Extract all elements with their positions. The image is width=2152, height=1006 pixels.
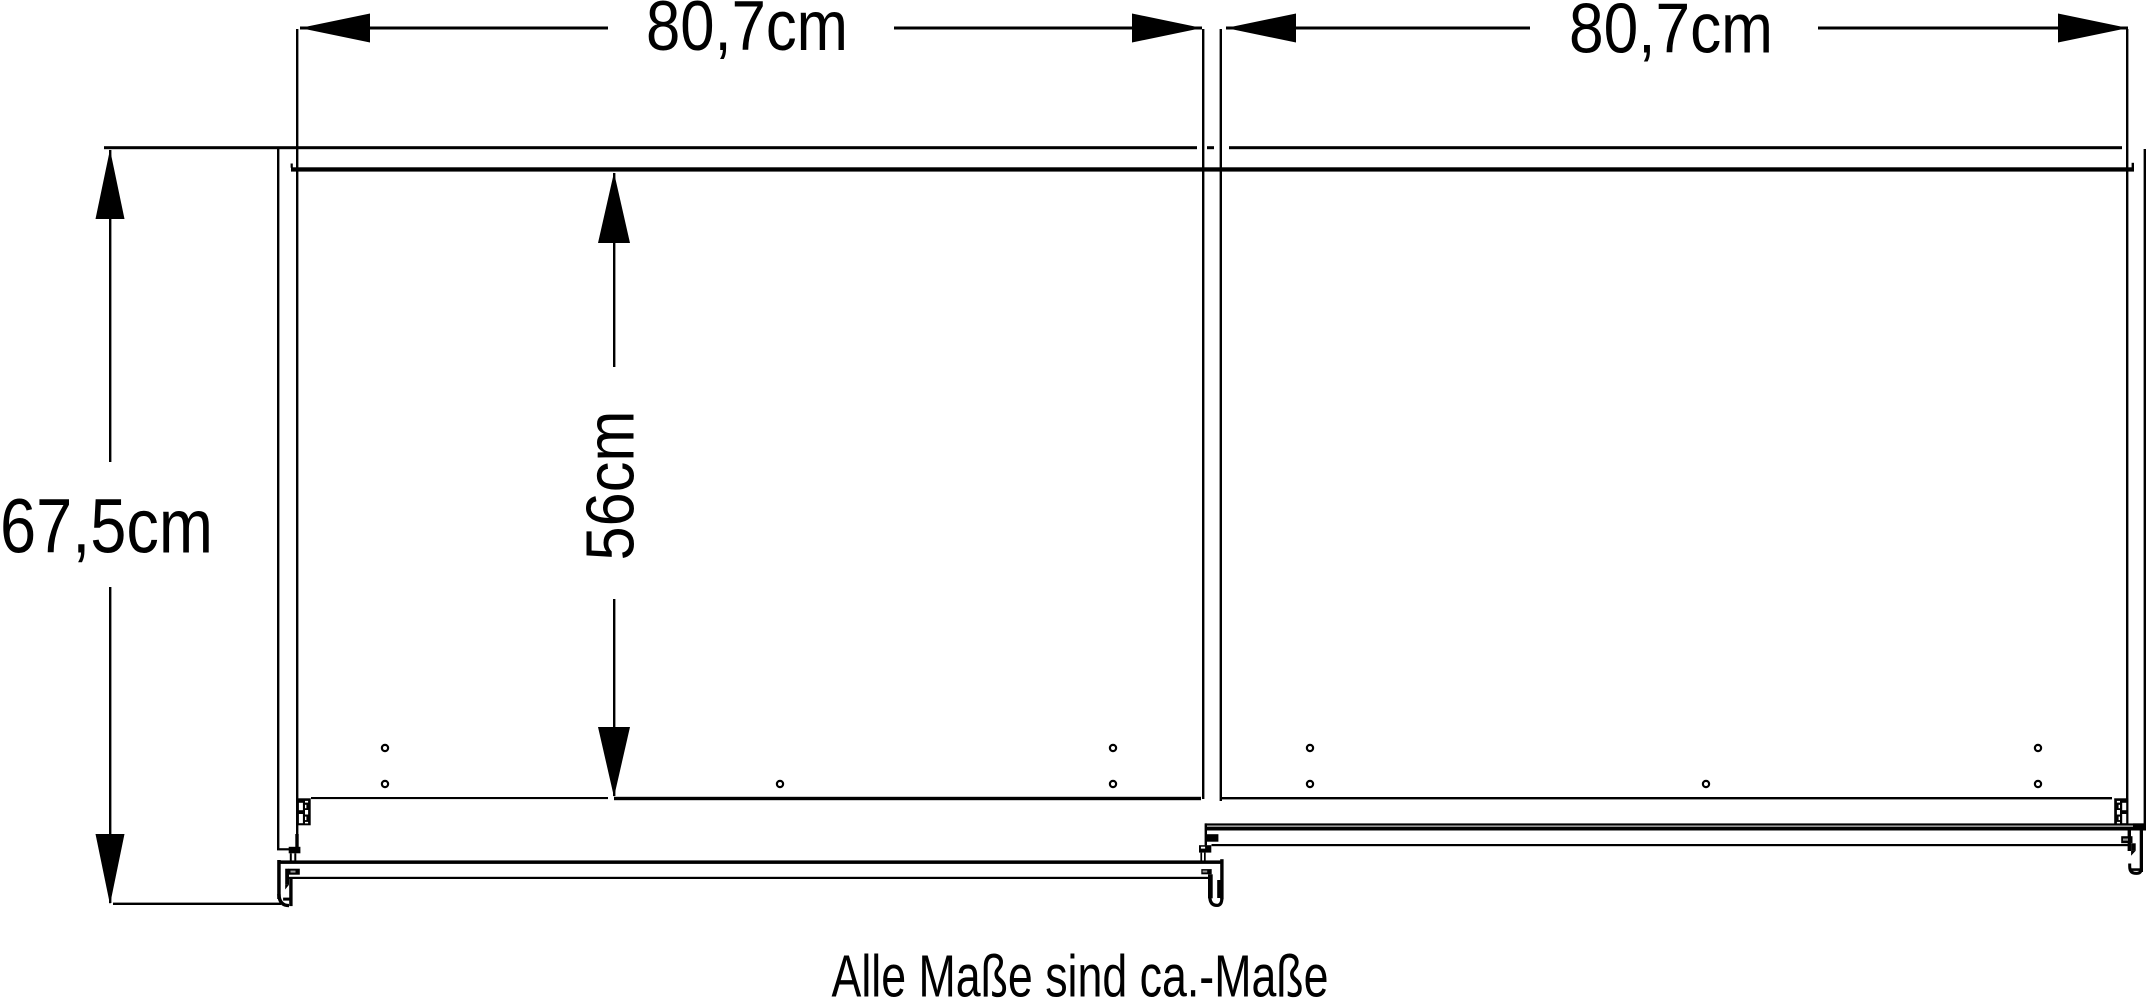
svg-text:80,7cm: 80,7cm — [1569, 0, 1773, 67]
svg-text:Alle Maße sind ca.-Maße: Alle Maße sind ca.-Maße — [832, 944, 1329, 1006]
svg-text:67,5cm: 67,5cm — [0, 484, 213, 570]
svg-text:80,7cm: 80,7cm — [646, 0, 848, 65]
svg-text:56cm: 56cm — [574, 411, 649, 561]
